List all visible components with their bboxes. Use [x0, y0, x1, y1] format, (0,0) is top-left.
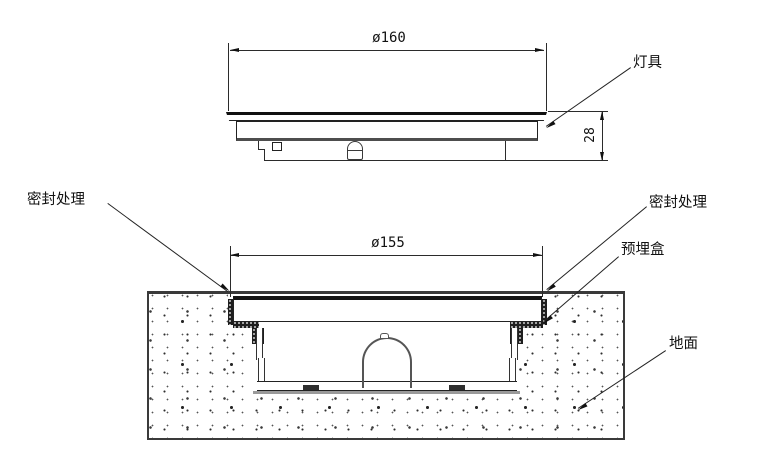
drawing-canvas: ø160 灯具 28 ø155 密封: [0, 0, 772, 472]
dim155-line: [230, 255, 542, 256]
box-wall-right-upper: [511, 328, 518, 360]
fixture-connector-bump: [347, 141, 363, 160]
box-seat-line: [253, 391, 520, 394]
fixture-label: 灯具: [633, 55, 662, 71]
dim28-arrow-bottom: [600, 152, 604, 161]
seal-left-horizontal: [233, 321, 259, 328]
box-wall-left-upper: [256, 328, 263, 360]
dim155-label: ø155: [357, 236, 419, 250]
seal-label-right: 密封处理: [649, 195, 707, 211]
fixture-lower-body-right-edge: [505, 141, 506, 161]
dim28-arrow-top: [600, 111, 604, 120]
seal-label-left: 密封处理: [27, 192, 85, 208]
cable-entry-nub: [380, 333, 389, 338]
dim160-arrow-left: [230, 48, 239, 52]
dim155-arrow-left: [230, 253, 239, 257]
seal-right-horizontal: [510, 321, 543, 328]
dim28-label: 28: [584, 122, 598, 148]
fixture-clip-block: [272, 142, 282, 151]
fixture-body: [236, 121, 538, 141]
ground-label: 地面: [669, 336, 698, 352]
embedded-box-label: 预埋盒: [621, 242, 665, 258]
dim160-line: [230, 50, 544, 51]
dim155-arrow-right: [533, 253, 542, 257]
fixture-face-plate: [226, 112, 547, 121]
box-flange-plate: [233, 296, 542, 322]
dim155-ext-right: [542, 246, 543, 297]
dim160-ext-left: [228, 43, 229, 111]
dim160-arrow-right: [535, 48, 544, 52]
cable-entry-arch: [362, 337, 412, 388]
box-bottom-tab-left: [303, 385, 319, 390]
fixture-bottom-line: [265, 160, 608, 161]
dim160-ext-right: [546, 43, 547, 111]
box-bottom-tab-right: [449, 385, 465, 390]
fixture-leader-line: [546, 67, 631, 127]
seal-left-leader-line: [107, 203, 228, 292]
dim160-label: ø160: [358, 31, 420, 45]
